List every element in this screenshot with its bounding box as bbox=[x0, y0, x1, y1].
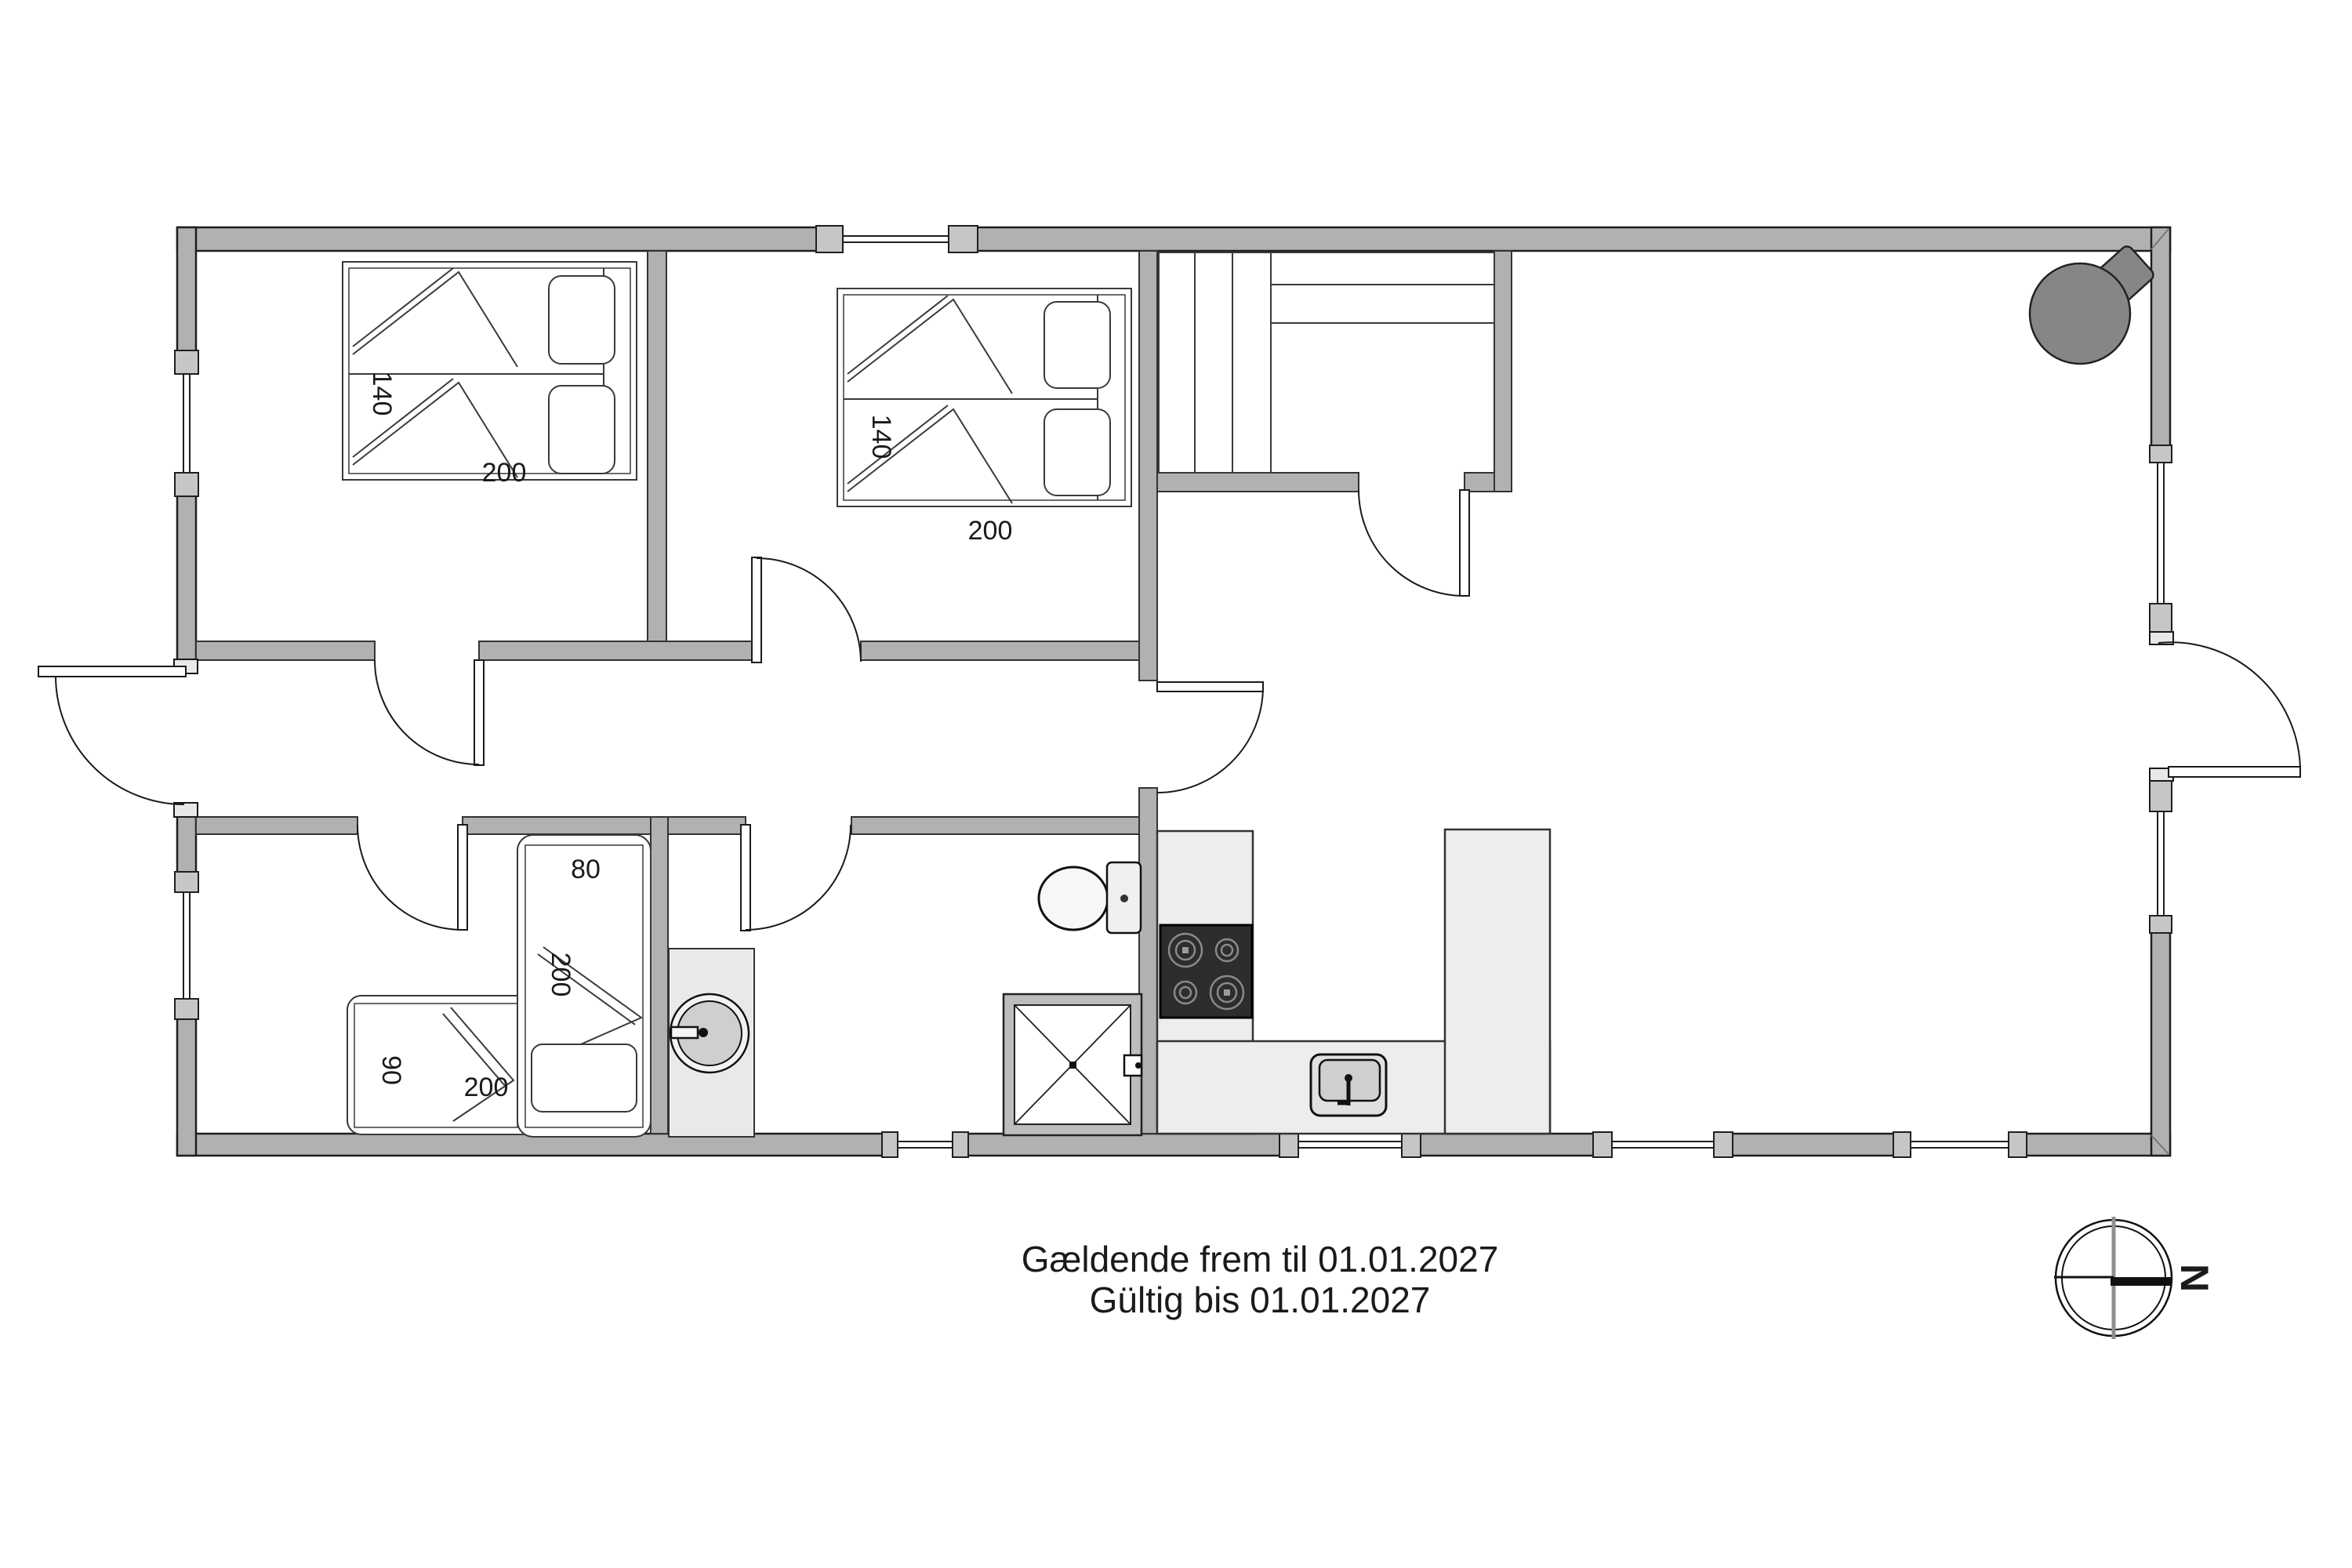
hall-fixtures bbox=[1159, 252, 1494, 473]
bedA-pillow bbox=[532, 1044, 637, 1112]
door-hall-living bbox=[1359, 490, 1469, 596]
label-bedB-length: 200 bbox=[464, 1073, 509, 1102]
door-terrace bbox=[2150, 632, 2300, 781]
floor-plan-drawing: 140 200 140 200 80 200 90 200 N Gældende… bbox=[0, 0, 2352, 1568]
wardrobe-closet bbox=[1159, 252, 1271, 473]
window-kidsroom-left bbox=[175, 872, 198, 1019]
shelf-unit bbox=[1271, 252, 1494, 323]
label-bedA-length: 200 bbox=[546, 953, 575, 997]
window-bedroom2-top bbox=[816, 226, 978, 252]
wall-top bbox=[177, 227, 2170, 251]
bathroom bbox=[669, 862, 1142, 1137]
wall-hall-right bbox=[1494, 251, 1512, 492]
label-bed2-width: 140 bbox=[866, 415, 896, 459]
door-corridor-kitchen bbox=[1157, 682, 1263, 793]
label-bedB-width: 90 bbox=[376, 1055, 406, 1085]
wall-hall-bottom-a bbox=[1157, 473, 1359, 492]
wall-corridor-bottom-b bbox=[463, 817, 746, 834]
validity-line-danish: Gældende frem til 01.01.2027 bbox=[1022, 1239, 1499, 1279]
wall-corridor-bottom-a bbox=[196, 817, 358, 834]
door-kidsroom bbox=[358, 825, 467, 930]
door-bedroom2 bbox=[752, 557, 861, 662]
bed1-pillow-2 bbox=[549, 386, 615, 474]
window-bathroom-bottom bbox=[882, 1132, 968, 1157]
kitchen-counter-right bbox=[1445, 829, 1550, 1134]
compass: N bbox=[2054, 1217, 2216, 1339]
floor-plan-page: 140 200 140 200 80 200 90 200 N Gældende… bbox=[0, 0, 2352, 1568]
stove-body bbox=[2030, 263, 2130, 364]
shower-valve-icon bbox=[1124, 1055, 1142, 1076]
kitchen-sink bbox=[1311, 1054, 1386, 1116]
validity-line-german: Gültig bis 01.01.2027 bbox=[1090, 1279, 1431, 1320]
window-kitchen-bottom bbox=[1279, 1132, 1421, 1157]
door-entrance bbox=[38, 659, 198, 817]
wall-corridor-top-c bbox=[861, 641, 1157, 660]
door-bathroom bbox=[741, 825, 851, 931]
window-living-right-lower bbox=[2150, 776, 2172, 933]
kitchen bbox=[1157, 829, 1550, 1134]
window-living-right-upper bbox=[2150, 445, 2172, 639]
label-bed2-length: 200 bbox=[968, 516, 1013, 546]
wall-kids-bath bbox=[651, 817, 668, 1134]
wall-bottom bbox=[177, 1134, 2170, 1156]
wood-stove bbox=[2030, 244, 2156, 364]
bed-bedroom2 bbox=[837, 289, 1131, 506]
shower bbox=[1004, 994, 1142, 1135]
compass-north-label: N bbox=[2172, 1264, 2216, 1292]
label-bed1-width: 140 bbox=[367, 372, 397, 416]
window-living-bottom-1 bbox=[1593, 1132, 1733, 1157]
bed2-pillow-1 bbox=[1044, 302, 1110, 388]
compass-north-bar bbox=[2111, 1277, 2172, 1286]
wall-corridor-bottom-c bbox=[851, 817, 1139, 834]
label-bed1-length: 200 bbox=[482, 458, 527, 488]
bed2-pillow-2 bbox=[1044, 409, 1110, 495]
window-living-bottom-2 bbox=[1893, 1132, 2027, 1157]
cooktop bbox=[1160, 925, 1252, 1018]
bed1-pillow-1 bbox=[549, 276, 615, 364]
wall-bed1-bed2 bbox=[648, 251, 666, 660]
wall-bed2-hall bbox=[1139, 251, 1157, 681]
label-bedA-width: 80 bbox=[571, 855, 601, 884]
wall-corridor-top-b bbox=[479, 641, 757, 660]
toilet bbox=[1039, 862, 1141, 933]
validity-note: Gældende frem til 01.01.2027 Gültig bis … bbox=[1022, 1239, 1499, 1320]
wall-corridor-top-a bbox=[196, 641, 375, 660]
window-bedroom1-left bbox=[175, 350, 198, 496]
vanity-faucet-icon bbox=[671, 1027, 708, 1038]
vanity-sink bbox=[669, 949, 754, 1137]
door-bedroom1 bbox=[375, 660, 484, 765]
